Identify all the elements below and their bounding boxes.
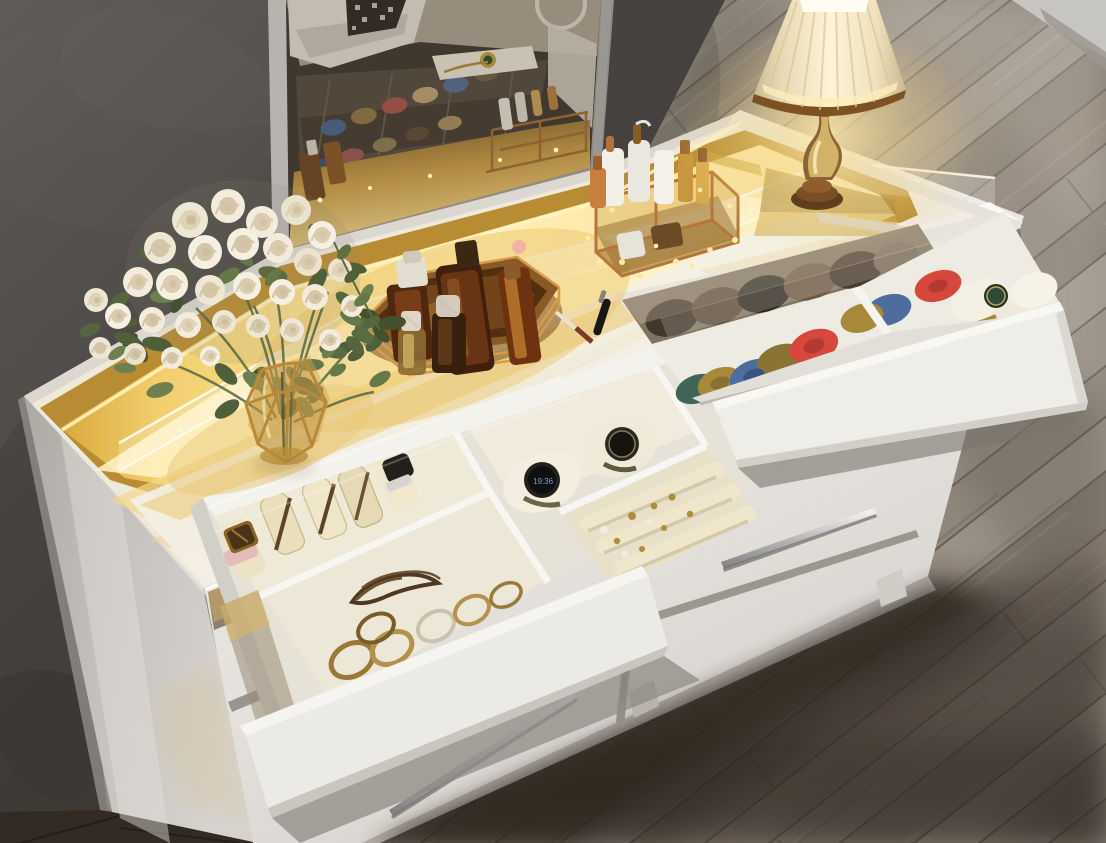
svg-text:19:36: 19:36: [533, 477, 554, 486]
